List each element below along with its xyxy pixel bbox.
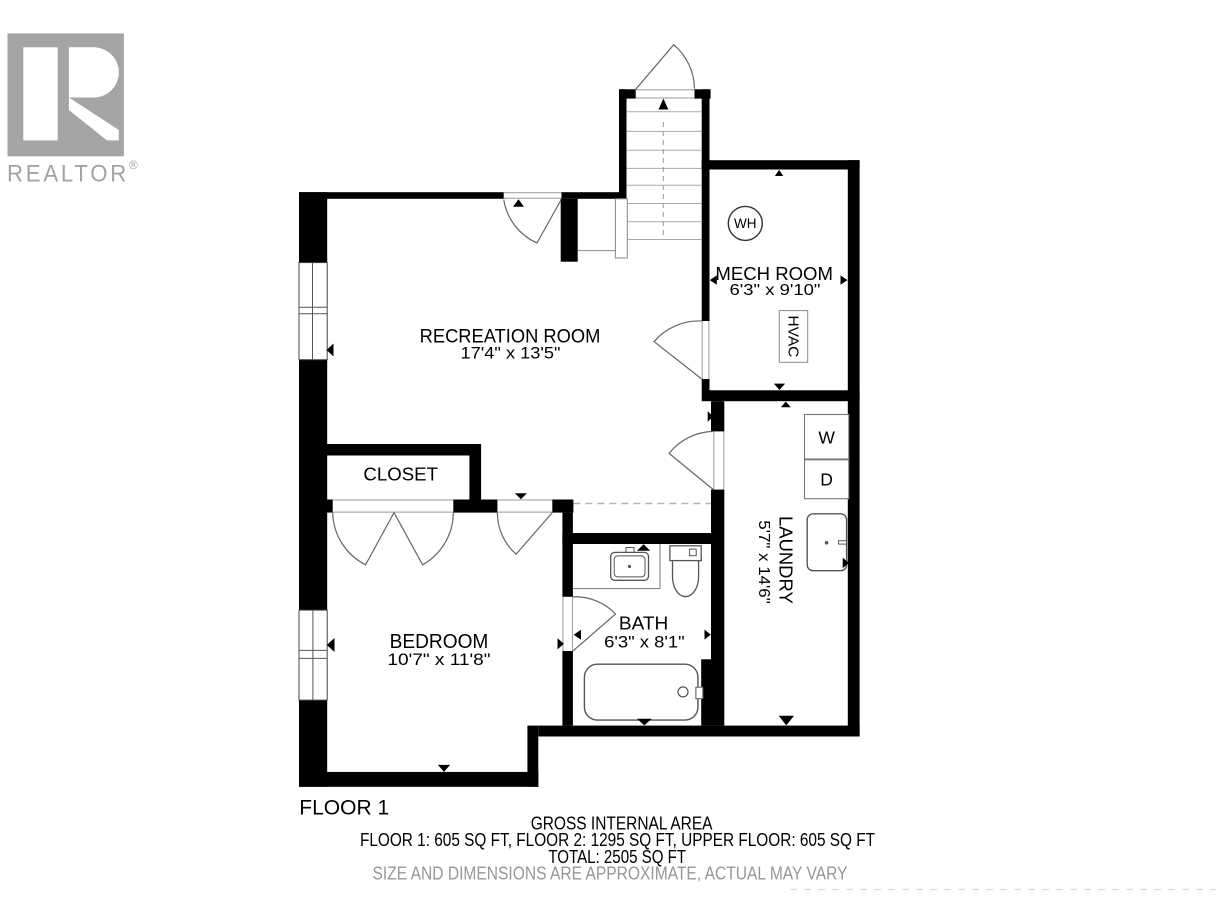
svg-text:SIZE AND DIMENSIONS ARE APPROX: SIZE AND DIMENSIONS ARE APPROXIMATE, ACT… xyxy=(373,864,848,884)
svg-text:WH: WH xyxy=(734,216,757,231)
svg-text:BATH: BATH xyxy=(619,613,668,633)
svg-text:FLOOR 1: FLOOR 1 xyxy=(299,796,389,819)
svg-text:MECH ROOM: MECH ROOM xyxy=(715,264,833,284)
svg-text:®: ® xyxy=(129,158,138,172)
svg-text:BEDROOM: BEDROOM xyxy=(390,631,489,653)
svg-text:6'3" x 8'1": 6'3" x 8'1" xyxy=(604,633,685,651)
svg-text:HVAC: HVAC xyxy=(785,315,802,357)
svg-text:D: D xyxy=(820,470,833,490)
svg-text:10'7" x 11'8": 10'7" x 11'8" xyxy=(387,651,490,669)
svg-text:17'4" x 13'5": 17'4" x 13'5" xyxy=(461,344,561,362)
svg-text:5'7" x 14'6": 5'7" x 14'6" xyxy=(755,520,772,603)
svg-text:6'3" x 9'10": 6'3" x 9'10" xyxy=(730,282,821,299)
svg-text:LAUNDRY: LAUNDRY xyxy=(775,516,795,604)
svg-text:W: W xyxy=(818,428,835,448)
svg-text:REALTOR: REALTOR xyxy=(7,161,129,188)
svg-text:CLOSET: CLOSET xyxy=(363,464,438,484)
